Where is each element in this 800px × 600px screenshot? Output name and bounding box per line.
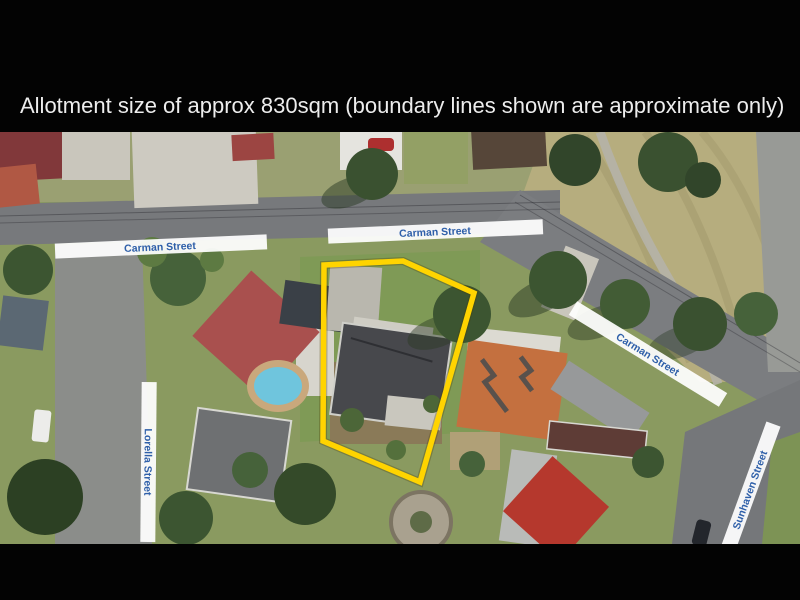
house-roof-brown (471, 132, 547, 170)
shrub (340, 408, 364, 432)
front-lawn (404, 132, 468, 184)
street-name-text: Lorella Street (141, 428, 154, 496)
tree (529, 251, 587, 309)
circular-garden-center (410, 511, 432, 533)
driveway (62, 132, 130, 180)
aerial-scene: Carman Street Carman Street Carman Stree… (0, 132, 800, 544)
shrub (459, 451, 485, 477)
house-roof-red-topcenter (231, 133, 274, 161)
tree (549, 134, 601, 186)
tree (232, 452, 268, 488)
caption-banner: Allotment size of approx 830sqm (boundar… (0, 0, 800, 132)
tree (7, 459, 83, 535)
bottom-letterbox (0, 544, 800, 600)
aerial-photo: Carman Street Carman Street Carman Stree… (0, 132, 800, 544)
tree (3, 245, 53, 295)
caption-text: Allotment size of approx 830sqm (boundar… (20, 92, 784, 120)
tree (673, 297, 727, 351)
tree (734, 292, 778, 336)
shrub (386, 440, 406, 460)
house-roof-bluegray (0, 295, 49, 350)
street-label-lorella: Lorella Street (140, 382, 156, 542)
swimming-pool (254, 367, 302, 405)
house-roof-terracotta-small (0, 164, 40, 208)
parked-van-white (31, 409, 51, 443)
tree (346, 148, 398, 200)
tree (632, 446, 664, 478)
tree (685, 162, 721, 198)
tree (274, 463, 336, 525)
property-listing-slide: Allotment size of approx 830sqm (boundar… (0, 0, 800, 600)
tree (159, 491, 213, 544)
